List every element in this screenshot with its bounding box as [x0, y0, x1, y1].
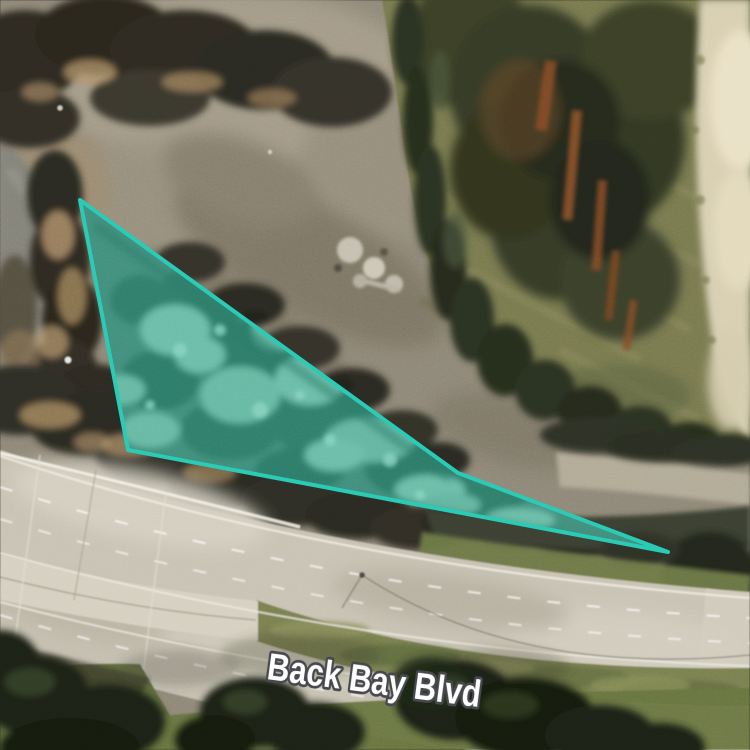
aerial-map-svg: Back Bay Blvd: [0, 0, 750, 750]
grain-overlay: [0, 0, 750, 750]
map-canvas[interactable]: Back Bay Blvd: [0, 0, 750, 750]
